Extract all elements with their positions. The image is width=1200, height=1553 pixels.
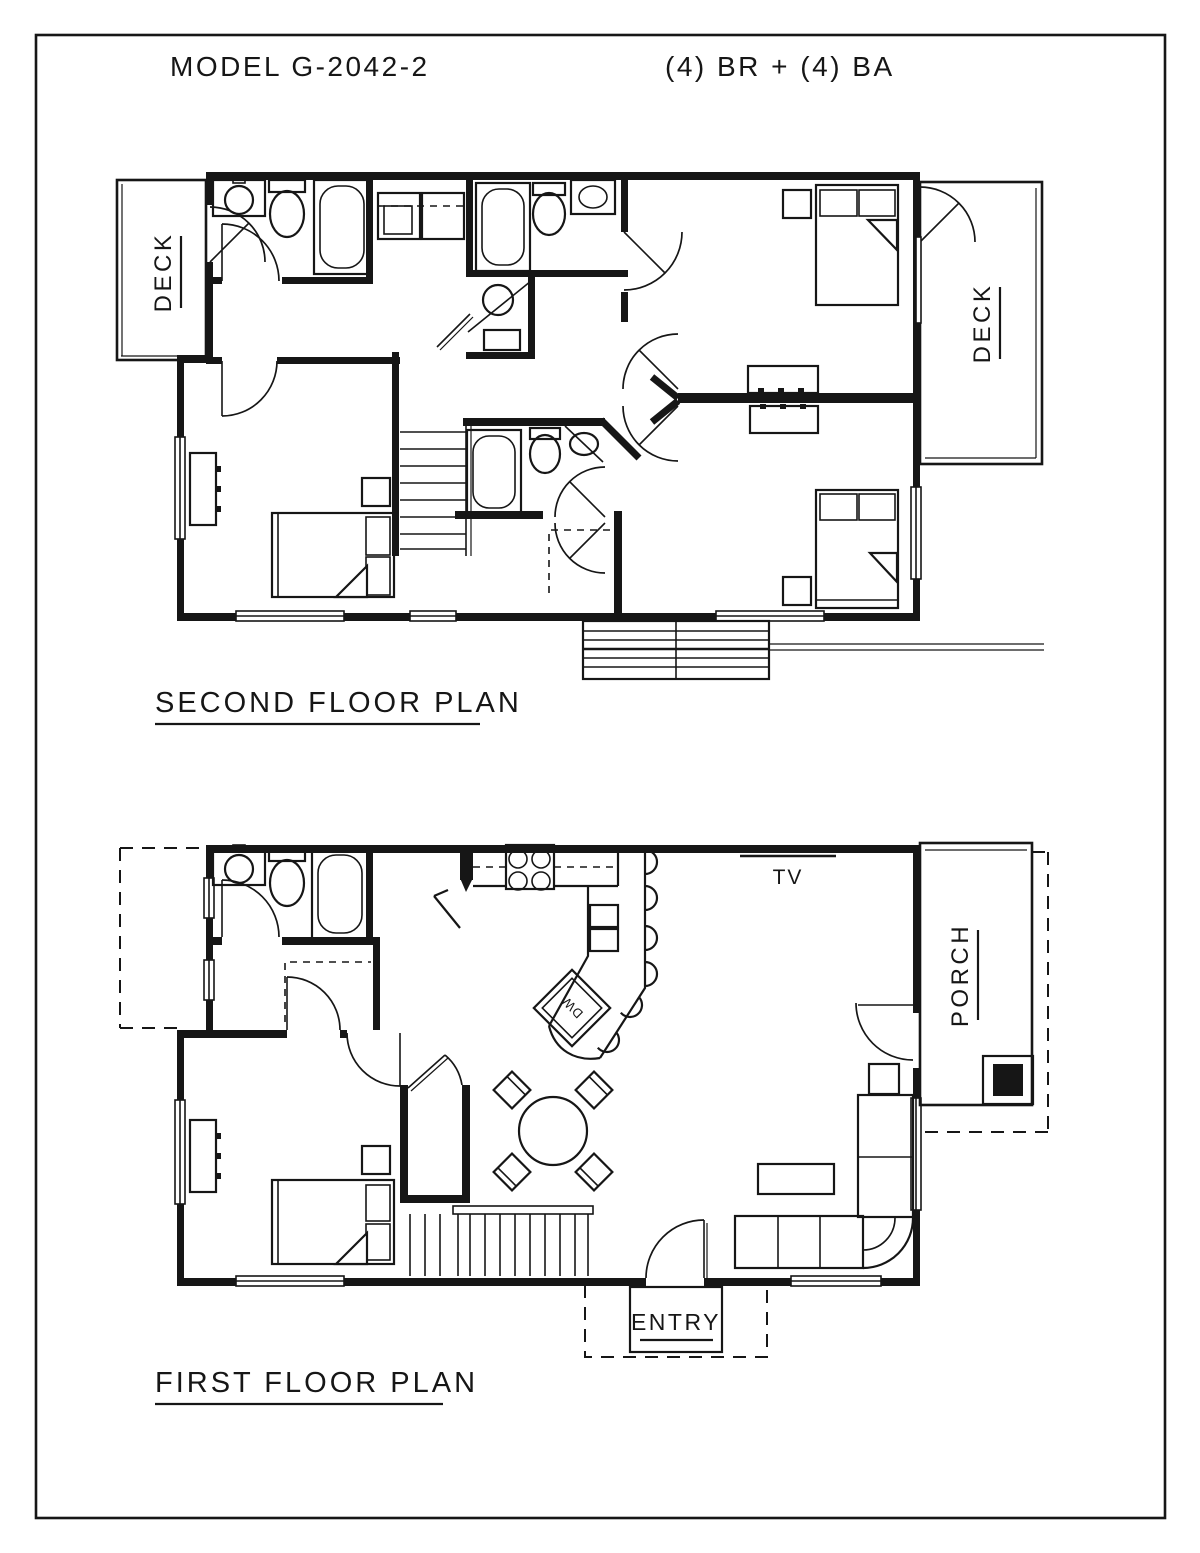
bar-stools (598, 850, 657, 1057)
dryer-icon (422, 193, 464, 239)
dresser-icon (750, 406, 818, 433)
kitchen-sink-icon (590, 929, 618, 951)
porch-label: PORCH (947, 923, 974, 1027)
bathroom-first-floor (213, 845, 368, 939)
bathroom-lower-middle (467, 426, 610, 593)
tv-wall: TV (740, 856, 836, 889)
chair-icon (576, 1072, 613, 1109)
deck-left-label: DECK (150, 232, 177, 313)
bathtub-icon (473, 436, 515, 508)
bedroom-lower-left (190, 453, 394, 597)
deck-above-outline (120, 848, 206, 1028)
nightstand-icon (783, 577, 811, 605)
deck-left: DECK (117, 180, 206, 360)
bathtub-icon (482, 189, 524, 265)
dresser-icon (190, 453, 216, 525)
deck-right: DECK (920, 182, 1042, 464)
second-floor-plan: DECK DECK (117, 172, 1044, 724)
bedroom-upper-right (748, 185, 898, 393)
sofa-icon (858, 1095, 913, 1217)
vanity-room (437, 281, 531, 350)
laundry-closet (378, 193, 464, 239)
toilet-icon (270, 860, 304, 906)
coffee-table-icon (758, 1164, 834, 1194)
bed-bath-title: (4) BR + (4) BA (665, 51, 895, 82)
bed-icon (272, 1180, 394, 1264)
nightstand-icon (362, 1146, 390, 1174)
dishwasher: DW (534, 970, 610, 1046)
corner-cabinet (434, 890, 460, 928)
end-table-icon (869, 1064, 899, 1094)
sofa-icon (735, 1216, 863, 1268)
grill-icon (993, 1064, 1023, 1096)
sink-icon (225, 855, 253, 883)
first-floor-exterior-walls (177, 845, 920, 1286)
deck-right-label: DECK (969, 283, 996, 364)
nightstand-icon (783, 190, 811, 218)
sink-icon (579, 186, 607, 208)
bathtub-icon (318, 855, 362, 933)
chair-icon (494, 1072, 531, 1109)
chair-icon (494, 1154, 531, 1191)
dining-table-icon (519, 1097, 587, 1165)
chair-icon (576, 1154, 613, 1191)
toilet-icon (270, 191, 304, 237)
toilet-icon (530, 435, 560, 473)
entry-label: ENTRY (631, 1309, 721, 1335)
dresser-icon (190, 1120, 216, 1192)
staircase-first-floor (410, 1206, 593, 1276)
nightstand-icon (362, 478, 390, 506)
dishwasher-label: DW (559, 994, 586, 1021)
porch: PORCH (856, 843, 1048, 1132)
bedroom-first-floor (190, 1033, 400, 1264)
first-floor-plan: DW TV (120, 843, 1048, 1404)
sink-vanity-icon (571, 180, 615, 214)
second-floor-plan-label: SECOND FLOOR PLAN (155, 687, 522, 719)
toilet-icon (533, 193, 565, 235)
bathtub-icon (320, 186, 364, 268)
living-room (735, 1064, 913, 1268)
bathroom-upper-left (213, 176, 370, 281)
entry: ENTRY (585, 1220, 767, 1357)
first-floor-plan-label: FIRST FLOOR PLAN (155, 1367, 478, 1399)
dining-set (494, 1072, 613, 1191)
bedroom-lower-right (750, 404, 898, 608)
staircase-second-floor (400, 425, 471, 556)
hall-closet (285, 962, 371, 1030)
kitchen-sink-icon (590, 905, 618, 927)
tv-label: TV (773, 866, 804, 889)
stair-closet (408, 1055, 462, 1091)
model-title: MODEL G-2042-2 (170, 51, 430, 82)
deck-stairs (583, 621, 1044, 679)
floor-plan-sheet: MODEL G-2042-2 (4) BR + (4) BA DECK DECK (0, 0, 1200, 1553)
